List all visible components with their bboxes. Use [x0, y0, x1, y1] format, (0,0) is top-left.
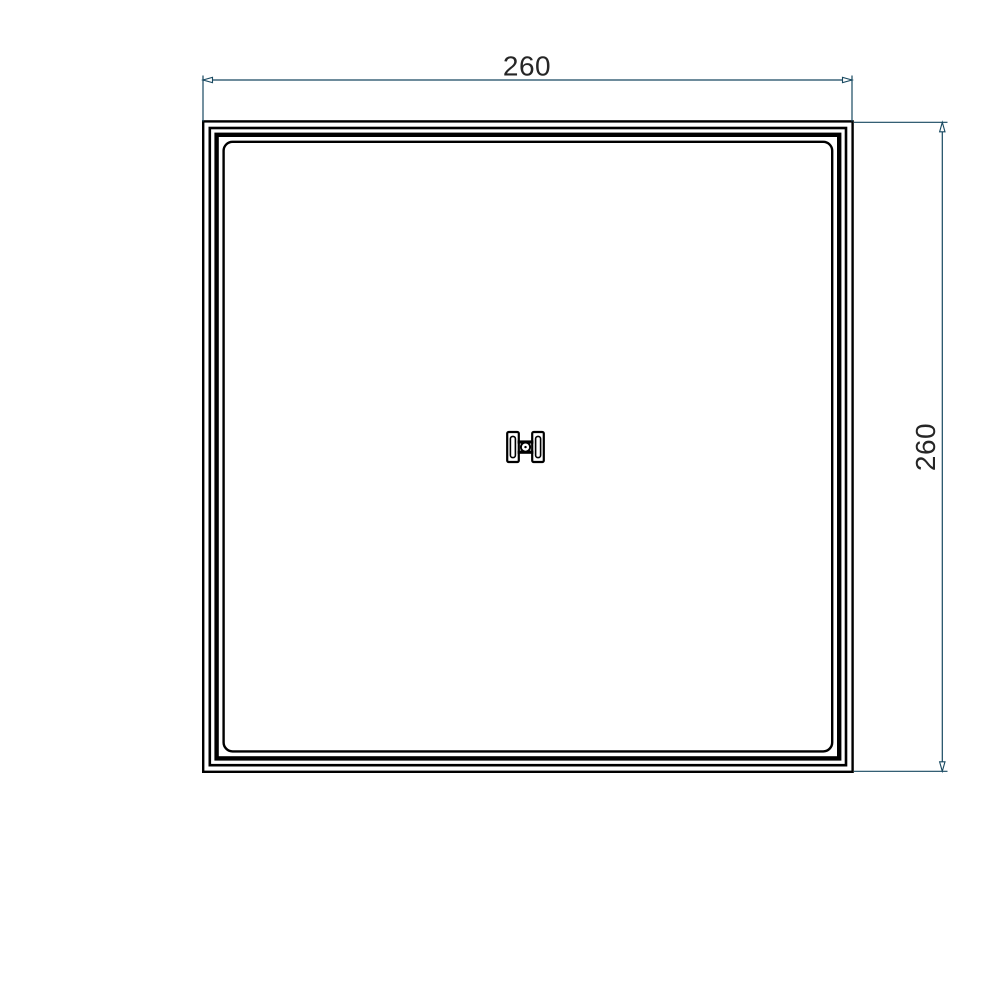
width-dimension-text: 260	[503, 51, 551, 82]
technical-drawing: 260 260	[0, 0, 1000, 1000]
fixture-right-slot	[536, 436, 541, 457]
width-arrowhead-right-icon	[843, 77, 853, 82]
dimension-width: 260	[203, 51, 852, 122]
center-fixture-symbol	[507, 432, 544, 462]
dimension-height: 260	[854, 122, 948, 771]
height-dimension-text: 260	[910, 423, 941, 471]
fixture-left-slot	[510, 436, 515, 457]
height-arrowhead-top-icon	[940, 122, 945, 132]
width-arrowhead-left-icon	[203, 77, 213, 82]
fixture-center-hole	[524, 446, 526, 448]
drawing-canvas: 260 260	[0, 0, 1000, 1000]
height-arrowhead-bottom-icon	[940, 762, 945, 772]
